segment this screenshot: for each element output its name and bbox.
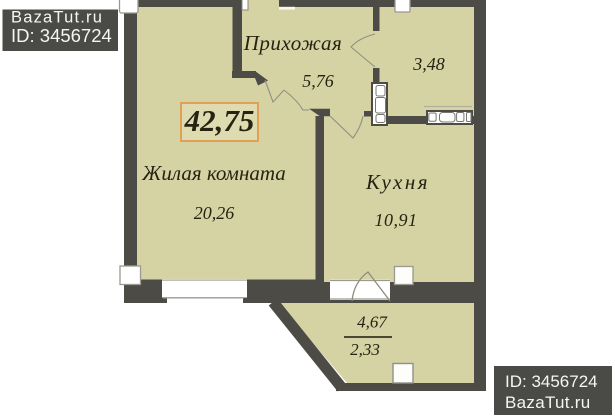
svg-text:5,76: 5,76 [302,71,334,91]
svg-text:10,91: 10,91 [375,210,418,230]
svg-text:BazaTut.ru: BazaTut.ru [505,393,591,412]
svg-text:20,26: 20,26 [194,203,235,223]
svg-text:Прихожая: Прихожая [243,31,342,55]
svg-text:3,48: 3,48 [412,54,445,74]
svg-text:Жилая комната: Жилая комната [141,161,286,185]
svg-text:4,67: 4,67 [357,313,388,332]
svg-text:BazaTut.ru: BazaTut.ru [11,9,103,27]
svg-text:ID: 3456724: ID: 3456724 [505,372,598,391]
svg-text:2,33: 2,33 [350,340,380,359]
svg-text:Кухня: Кухня [365,170,430,194]
svg-text:42,75: 42,75 [184,103,255,138]
svg-text:ID: 3456724: ID: 3456724 [11,25,112,46]
